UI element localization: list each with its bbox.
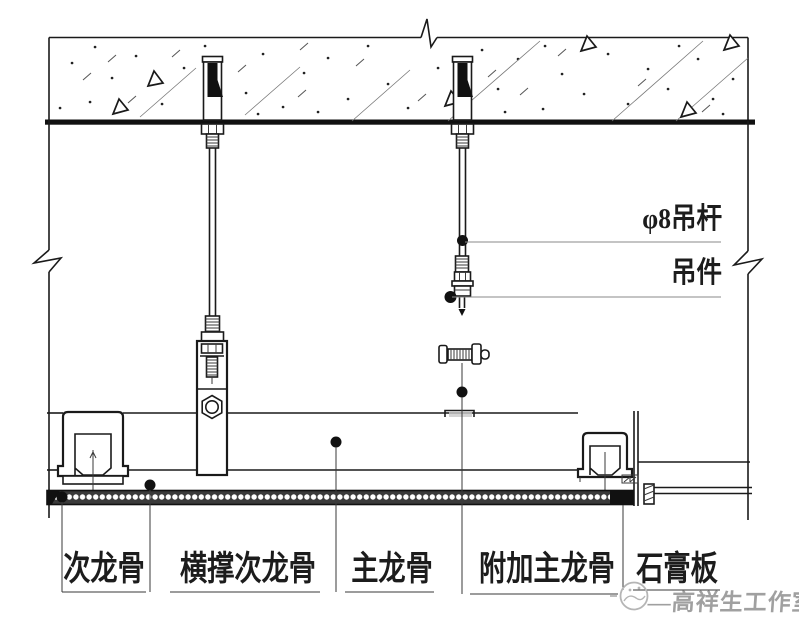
expansion-anchor-left	[202, 57, 224, 149]
label-main-keel: 主龙骨	[320, 549, 464, 591]
ceiling-suspension-detail-diagram: φ8吊杆 吊件 次龙骨 横撑次龙骨 主龙骨 附加主龙骨 石膏板 —高祥生工作室	[0, 0, 799, 629]
hanger-rod-left	[202, 148, 224, 341]
slab-soffit-line	[45, 120, 755, 125]
gypsum-board	[47, 491, 633, 505]
label-additional-main-keel: 附加主龙骨	[475, 549, 619, 591]
hatch-dashes	[83, 43, 710, 112]
main-runner-hanger-bracket	[197, 341, 227, 475]
left-boundary-line	[34, 38, 61, 519]
leader-dot-secondary-keel	[57, 492, 68, 503]
watermark-text: —高祥生工作室	[647, 583, 799, 617]
leader-dot-rod	[457, 235, 468, 246]
label-cross-brace-secondary-keel: 横撑次龙骨	[176, 549, 320, 591]
additional-runner-bolt-connector	[439, 344, 489, 392]
leader-dot-main-keel	[331, 437, 342, 448]
concrete-slab	[45, 19, 755, 125]
hanger-rod-middle	[456, 148, 469, 272]
main-runner-lines	[47, 411, 578, 471]
furring-channel-left	[58, 412, 128, 492]
hatch-diagonals	[140, 41, 748, 121]
runner-saddle-shadow	[449, 412, 472, 417]
leader-dot-additional-keel	[457, 387, 468, 398]
edge-trim-detail	[622, 411, 752, 506]
label-hanger-rod: φ8吊杆	[599, 201, 722, 237]
right-boundary-line	[734, 121, 762, 520]
leader-dot-cross-brace	[145, 480, 156, 491]
expansion-anchor-right	[452, 57, 474, 149]
detail-linework	[0, 0, 799, 629]
label-secondary-keel: 次龙骨	[32, 549, 176, 591]
label-hanger-piece: 吊件	[599, 255, 722, 291]
